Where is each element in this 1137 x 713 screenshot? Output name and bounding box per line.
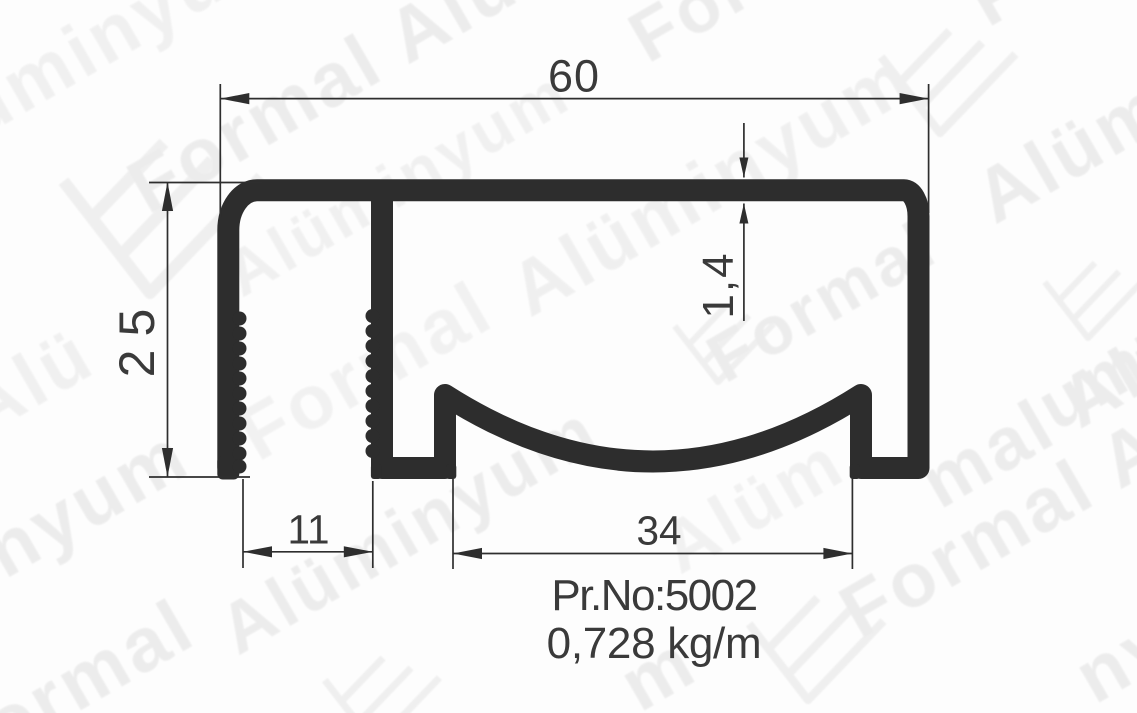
- svg-text:Pr.No:5002: Pr.No:5002: [551, 571, 756, 620]
- svg-text:25: 25: [109, 296, 165, 378]
- svg-text:0,728 kg/m: 0,728 kg/m: [547, 619, 762, 668]
- svg-text:1,4: 1,4: [694, 251, 743, 318]
- svg-text:11: 11: [287, 507, 329, 553]
- svg-text:34: 34: [636, 508, 681, 554]
- svg-text:60: 60: [548, 51, 600, 102]
